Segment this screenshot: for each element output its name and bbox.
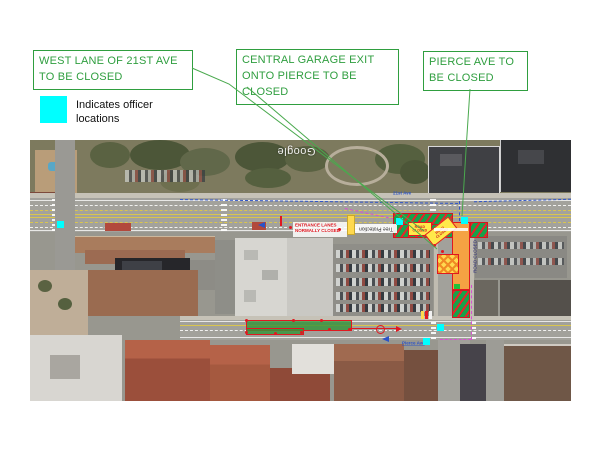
officer-layer xyxy=(30,140,571,401)
officer-location-marker xyxy=(57,221,64,228)
page: { "callouts": [ {"id": "west-lane", "tex… xyxy=(0,0,600,450)
callout-pierce-ave-text: PIERCE AVE TO BE CLOSED xyxy=(429,56,514,84)
officer-location-marker xyxy=(461,217,468,224)
officer-location-marker xyxy=(396,218,403,225)
legend-officer-swatch xyxy=(40,96,67,123)
callout-west-lane: WEST LANE OF 21ST AVE TO BE CLOSED xyxy=(33,50,193,90)
google-watermark: Google xyxy=(277,145,315,157)
callout-central-garage-text: CENTRAL GARAGE EXIT ONTO PIERCE TO BE CL… xyxy=(242,54,374,98)
legend-officer-label: Indicates officer locations xyxy=(76,98,171,127)
callout-pierce-ave: PIERCE AVE TO BE CLOSED xyxy=(423,51,528,91)
callout-west-lane-text: WEST LANE OF 21ST AVE TO BE CLOSED xyxy=(39,55,178,83)
satellite-map: ROAD CLOSED ROAD CLOSED ROAD CLOSED ENTR… xyxy=(30,140,571,401)
officer-location-marker xyxy=(423,338,430,345)
callout-central-garage: CENTRAL GARAGE EXIT ONTO PIERCE TO BE CL… xyxy=(236,49,399,105)
officer-location-marker xyxy=(437,324,444,331)
